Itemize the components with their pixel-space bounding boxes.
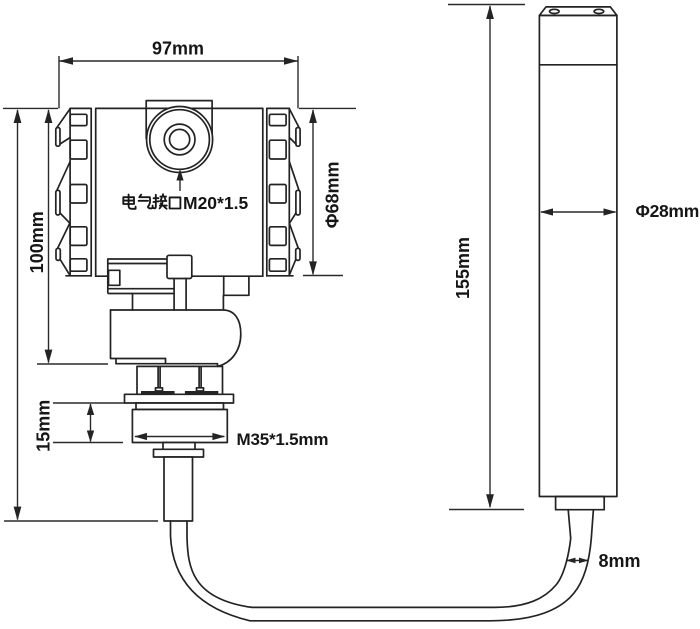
- svg-text:97mm: 97mm: [152, 39, 204, 59]
- svg-text:8mm: 8mm: [599, 551, 641, 571]
- svg-text:15mm: 15mm: [33, 400, 53, 452]
- svg-text:Φ28mm: Φ28mm: [636, 201, 699, 221]
- svg-text:100mm: 100mm: [27, 211, 47, 273]
- svg-text:M35*1.5mm: M35*1.5mm: [237, 430, 329, 449]
- svg-text:M20*1.5: M20*1.5: [183, 193, 248, 213]
- svg-text:Φ68mm: Φ68mm: [323, 161, 343, 228]
- svg-text:155mm: 155mm: [453, 237, 473, 299]
